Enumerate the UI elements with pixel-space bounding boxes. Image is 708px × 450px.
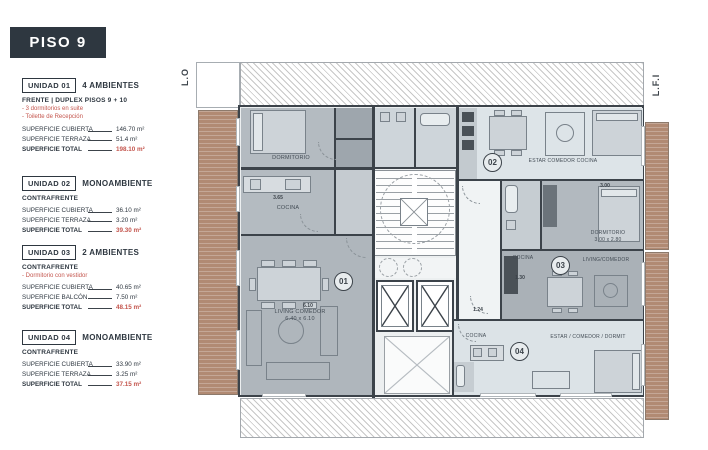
surface-value: 7.50 m² <box>116 294 137 301</box>
leader-line <box>88 231 112 232</box>
wall <box>452 319 644 321</box>
surface-row: SUPERFICIE CUBIERTA 40.65 m² <box>22 284 172 291</box>
surface-value: 40.65 m² <box>116 284 141 291</box>
u4-room-label: ESTAR / COMEDOR / DORMIT <box>536 334 640 341</box>
wall <box>241 167 374 170</box>
surface-label: SUPERFICIE CUBIERTA <box>22 361 86 368</box>
chair-icon <box>303 260 317 267</box>
wall <box>336 138 374 140</box>
unit-02-type: MONOAMBIENTE <box>82 179 152 188</box>
surface-row: SUPERFICIE CUBIERTA 33.90 m² <box>22 361 172 368</box>
door-swing-circle <box>403 258 422 277</box>
u1-kitchen-label: COCINA <box>258 205 318 212</box>
elevator-x-icon <box>382 286 408 326</box>
unit-01-type: 4 AMBIENTES <box>82 81 139 90</box>
unit-01-tag: UNIDAD 01 <box>22 78 76 93</box>
right-balcony-deck-top <box>645 122 669 250</box>
top-hatch-band <box>240 62 644 108</box>
left-terrace-deck <box>198 110 238 395</box>
unit-03-feature: - Dormitorio con vestidor <box>22 273 172 279</box>
chair-icon <box>568 271 578 276</box>
sink-icon <box>473 348 482 357</box>
appliance-icon <box>462 126 474 136</box>
leader-line <box>88 375 112 376</box>
unit-03-circle: 03 <box>551 256 570 275</box>
bathtub-icon <box>420 113 450 126</box>
floorplan-page: PISO 9 UNIDAD 01 4 AMBIENTES FRENTE | DU… <box>0 0 708 450</box>
u3-bedroom-label: DORMITORIO <box>578 230 638 237</box>
surface-label: SUPERFICIE TOTAL <box>22 304 86 311</box>
surface-total-row: SUPERFICIE TOTAL 48.15 m² <box>22 304 172 311</box>
unit-04-tag: UNIDAD 04 <box>22 330 76 345</box>
surface-label: SUPERFICIE TERRAZA <box>22 136 86 143</box>
appliance-icon <box>462 112 474 122</box>
page-title: PISO 9 <box>10 27 106 58</box>
leader-line <box>88 221 112 222</box>
wall <box>458 179 644 181</box>
unit-01-feature: - Toilette de Recepción <box>22 114 172 120</box>
wall <box>502 249 644 251</box>
surface-value: 3.25 m² <box>116 371 137 378</box>
unit-02-subtitle: CONTRAFRENTE <box>22 195 172 202</box>
u3-dining-table <box>547 277 583 307</box>
leader-line <box>88 366 112 367</box>
unit-03-type: 2 AMBIENTES <box>82 248 139 257</box>
surface-value: 33.90 m² <box>116 361 141 368</box>
surface-value: 146.70 m² <box>116 126 144 133</box>
unit-03-tag: UNIDAD 03 <box>22 245 76 260</box>
u1-sofa-bottom <box>266 362 330 380</box>
window <box>641 262 645 306</box>
unit-04-info: UNIDAD 04 MONOAMBIENTE CONTRAFRENTE SUPE… <box>22 330 172 388</box>
chair-icon <box>249 278 256 291</box>
u3-wardrobe <box>543 185 557 227</box>
unit-01-subtitle: FRENTE | DUPLEX PISOS 9 + 10 <box>22 97 172 104</box>
wall <box>334 108 336 234</box>
bathtub-icon <box>456 365 465 387</box>
surface-value: 48.15 m² <box>116 304 141 311</box>
sink-icon <box>506 220 516 230</box>
chair-icon <box>511 150 522 156</box>
wall <box>374 167 456 169</box>
dim-label: 1.24 <box>466 307 490 313</box>
surface-value: 37.15 m² <box>116 381 141 388</box>
u2-room-label: ESTAR COMEDOR COCINA <box>518 158 608 165</box>
surface-label: SUPERFICIE TERRAZA <box>22 217 86 224</box>
surface-label: SUPERFICIE TOTAL <box>22 381 86 388</box>
surface-value: 198.10 m² <box>116 146 145 153</box>
surface-row: SUPERFICIE TERRAZA 51.4 m² <box>22 136 172 143</box>
dim-label: 3.00 <box>590 183 620 189</box>
leader-line <box>88 150 112 151</box>
u3-side-table <box>603 283 618 298</box>
surface-total-row: SUPERFICIE TOTAL 198.10 m² <box>22 146 172 153</box>
u1-dining-table <box>257 267 321 301</box>
window <box>236 118 240 146</box>
chair-icon <box>282 260 296 267</box>
u3-bedroom-dim: 3.00 x 2.80 <box>578 237 638 244</box>
window <box>236 330 240 370</box>
stove-icon <box>488 348 497 357</box>
chair-icon <box>568 308 578 313</box>
chair-icon <box>261 302 275 309</box>
surface-label: SUPERFICIE TOTAL <box>22 146 86 153</box>
surface-label: SUPERFICIE CUBIERTA <box>22 284 86 291</box>
setback-box <box>196 62 240 108</box>
leader-line <box>88 298 112 299</box>
unit-03-subtitle: CONTRAFRENTE <box>22 264 172 271</box>
wall <box>414 108 416 168</box>
right-balcony-deck-bottom <box>645 252 669 420</box>
wall <box>372 105 375 398</box>
elevator-2 <box>416 280 454 332</box>
window <box>236 250 240 286</box>
surface-row: SUPERFICIE TERRAZA 3.20 m² <box>22 217 172 224</box>
unit-04-circle: 04 <box>510 342 529 361</box>
unit-01-circle: 01 <box>334 272 353 291</box>
window <box>560 393 612 397</box>
wall <box>452 321 454 395</box>
surface-label: SUPERFICIE BALCÓN <box>22 294 86 301</box>
leader-line <box>88 289 112 290</box>
surface-row: SUPERFICIE CUBIERTA 36.10 m² <box>22 207 172 214</box>
wall <box>456 105 459 321</box>
surface-total-row: SUPERFICIE TOTAL 37.15 m² <box>22 381 172 388</box>
leader-line <box>88 131 112 132</box>
elevator-x-icon <box>422 286 448 326</box>
dim-label: 3.65 <box>258 195 298 201</box>
door-swing-circle <box>380 174 450 244</box>
elevator-1 <box>376 280 414 332</box>
stove-icon <box>285 179 301 190</box>
unit-04-type: MONOAMBIENTE <box>82 333 152 342</box>
surface-label: SUPERFICIE TERRAZA <box>22 371 86 378</box>
surface-row: SUPERFICIE BALCÓN 7.50 m² <box>22 294 172 301</box>
lot-line-left-label: L.O <box>180 58 190 96</box>
wall <box>540 181 542 249</box>
chair-icon <box>494 110 505 116</box>
surface-row: SUPERFICIE CUBIERTA 146.70 m² <box>22 126 172 133</box>
surface-label: SUPERFICIE CUBIERTA <box>22 126 86 133</box>
unit-02-circle: 02 <box>483 153 502 172</box>
wall <box>500 181 502 319</box>
leader-line <box>88 308 112 309</box>
u4-kitchen-label: COCINA <box>456 333 496 340</box>
leader-line <box>88 212 112 213</box>
chair-icon <box>322 278 329 291</box>
surface-value: 39.30 m² <box>116 227 141 234</box>
u2-dining-table <box>489 116 527 150</box>
surface-value: 3.20 m² <box>116 217 137 224</box>
air-shaft <box>384 336 450 394</box>
chair-icon <box>261 260 275 267</box>
window <box>262 393 306 397</box>
u3-kitchen-label: COCINA <box>506 255 540 262</box>
unit-01-info: UNIDAD 01 4 AMBIENTES FRENTE | DUPLEX PI… <box>22 78 172 153</box>
u1-hall <box>336 170 374 234</box>
door-swing-circle <box>379 258 398 277</box>
unit-02-info: UNIDAD 02 MONOAMBIENTE CONTRAFRENTE SUPE… <box>22 176 172 234</box>
pillow-icon <box>601 189 637 197</box>
wall <box>241 234 374 236</box>
leader-line <box>88 385 112 386</box>
window <box>641 344 645 386</box>
bottom-hatch-band <box>240 398 644 438</box>
window <box>641 126 645 166</box>
window <box>236 186 240 212</box>
shaft-x-icon <box>385 337 449 393</box>
surface-label: SUPERFICIE TOTAL <box>22 227 86 234</box>
leader-line <box>88 140 112 141</box>
surface-value: 36.10 m² <box>116 207 141 214</box>
surface-row: SUPERFICIE TERRAZA 3.25 m² <box>22 371 172 378</box>
unit-04-subtitle: CONTRAFRENTE <box>22 349 172 356</box>
lot-line-right-label: L.F.I <box>651 63 661 107</box>
chair-icon <box>511 110 522 116</box>
surface-value: 51.4 m² <box>116 136 137 143</box>
u4-sofa <box>532 371 570 389</box>
u1-living-dim: 6.40 x 6.10 <box>254 316 346 323</box>
u1-bedroom-label: DORMITORIO <box>256 155 326 162</box>
dim-label: 1.30 <box>508 275 532 281</box>
bathtub-icon <box>505 185 518 213</box>
window <box>480 393 536 397</box>
sink-icon <box>396 112 406 122</box>
surface-total-row: SUPERFICIE TOTAL 39.30 m² <box>22 227 172 234</box>
pillow-icon <box>632 353 640 390</box>
unit-01-feature: - 3 dormitorios en suite <box>22 106 172 112</box>
unit-03-info: UNIDAD 03 2 AMBIENTES CONTRAFRENTE - Dor… <box>22 245 172 311</box>
surface-label: SUPERFICIE CUBIERTA <box>22 207 86 214</box>
chair-icon <box>552 308 562 313</box>
pillow-icon <box>253 113 263 151</box>
sink-icon <box>250 179 261 190</box>
unit-02-tag: UNIDAD 02 <box>22 176 76 191</box>
pillow-icon <box>596 113 638 121</box>
u2-side-table <box>556 124 574 142</box>
toilet-icon <box>380 112 390 122</box>
u3-living-label: LIVING/COMEDOR <box>572 257 640 264</box>
appliance-icon <box>462 140 474 150</box>
